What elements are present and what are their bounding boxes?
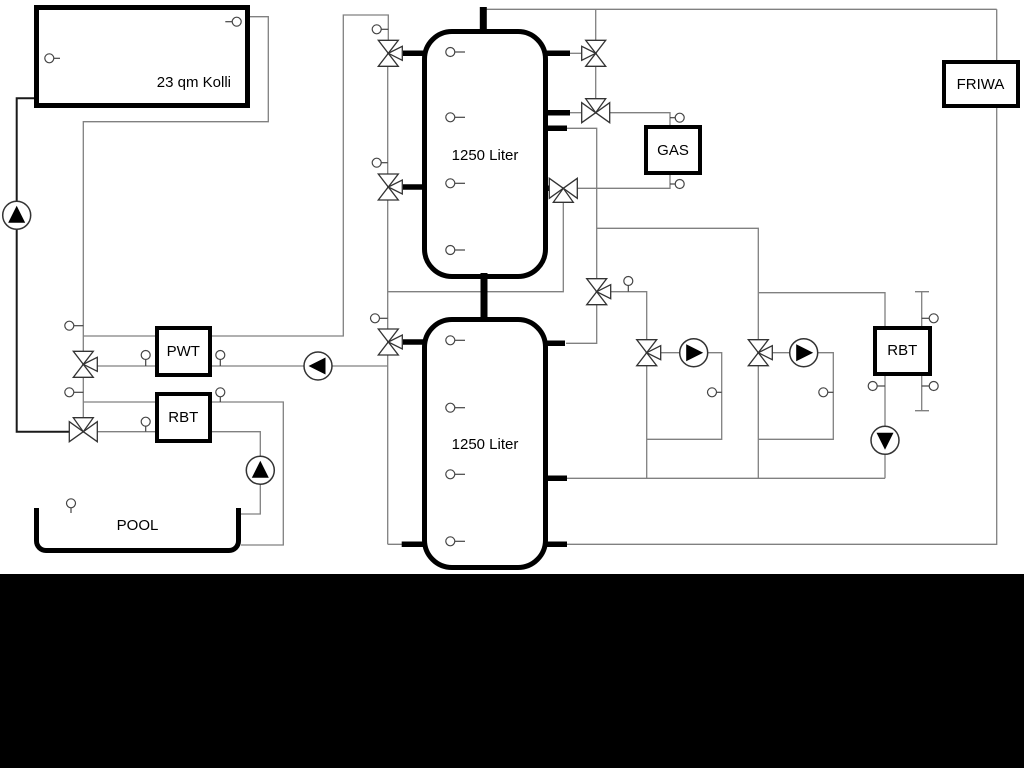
temperature-sensor-icon xyxy=(922,382,939,391)
pump-right-icon xyxy=(680,339,708,367)
temperature-sensor-icon xyxy=(65,388,84,397)
three-way-valve-icon xyxy=(69,418,97,442)
temperature-sensor-icon xyxy=(922,314,939,323)
temperature-sensor-icon xyxy=(868,382,885,391)
temperature-sensor-icon xyxy=(372,158,388,167)
temperature-sensor-icon xyxy=(372,25,388,34)
temperature-sensor-icon xyxy=(446,470,465,479)
temperature-sensor-icon xyxy=(670,180,684,189)
temperature-sensor-icon xyxy=(446,246,465,255)
temperature-sensor-icon xyxy=(141,417,150,432)
temperature-sensor-icon xyxy=(216,388,225,402)
temperature-sensor-icon xyxy=(371,314,388,323)
temperature-sensor-icon xyxy=(45,54,60,63)
temperature-sensor-icon xyxy=(65,321,84,330)
schematic-diagram: 23 qm Kolli 1250 Liter 1250 Liter PWT RB… xyxy=(0,0,1024,768)
pump-left-icon xyxy=(304,352,332,380)
three-way-valve-icon xyxy=(637,340,661,366)
temperature-sensor-icon xyxy=(446,403,465,412)
three-way-valve-icon xyxy=(378,174,402,200)
temperature-sensor-icon xyxy=(446,537,465,546)
pump-up-icon xyxy=(3,201,31,229)
three-way-valve-icon xyxy=(587,279,611,305)
temperature-sensor-icon xyxy=(670,113,684,122)
three-way-valve-icon xyxy=(73,351,97,377)
temperature-sensor-icon xyxy=(624,277,633,292)
temperature-sensor-icon xyxy=(225,17,241,26)
temperature-sensor-icon xyxy=(141,351,150,367)
temperature-sensor-icon xyxy=(446,179,465,188)
pump-down-icon xyxy=(871,426,899,454)
temperature-sensor-icon xyxy=(708,388,722,397)
symbols-layer xyxy=(0,0,1024,576)
three-way-valve-icon xyxy=(549,178,577,202)
bottom-black-bar xyxy=(0,574,1024,768)
three-way-valve-icon xyxy=(748,340,772,366)
temperature-sensor-icon xyxy=(67,499,76,513)
three-way-valve-icon xyxy=(582,40,606,66)
pump-up-icon xyxy=(246,456,274,484)
three-way-valve-icon xyxy=(582,99,610,123)
temperature-sensor-icon xyxy=(446,113,465,122)
three-way-valve-icon xyxy=(378,40,402,66)
temperature-sensor-icon xyxy=(446,48,465,57)
pump-right-icon xyxy=(790,339,818,367)
three-way-valve-icon xyxy=(378,329,402,355)
temperature-sensor-icon xyxy=(446,336,465,345)
temperature-sensor-icon xyxy=(819,388,834,397)
temperature-sensor-icon xyxy=(216,351,225,367)
